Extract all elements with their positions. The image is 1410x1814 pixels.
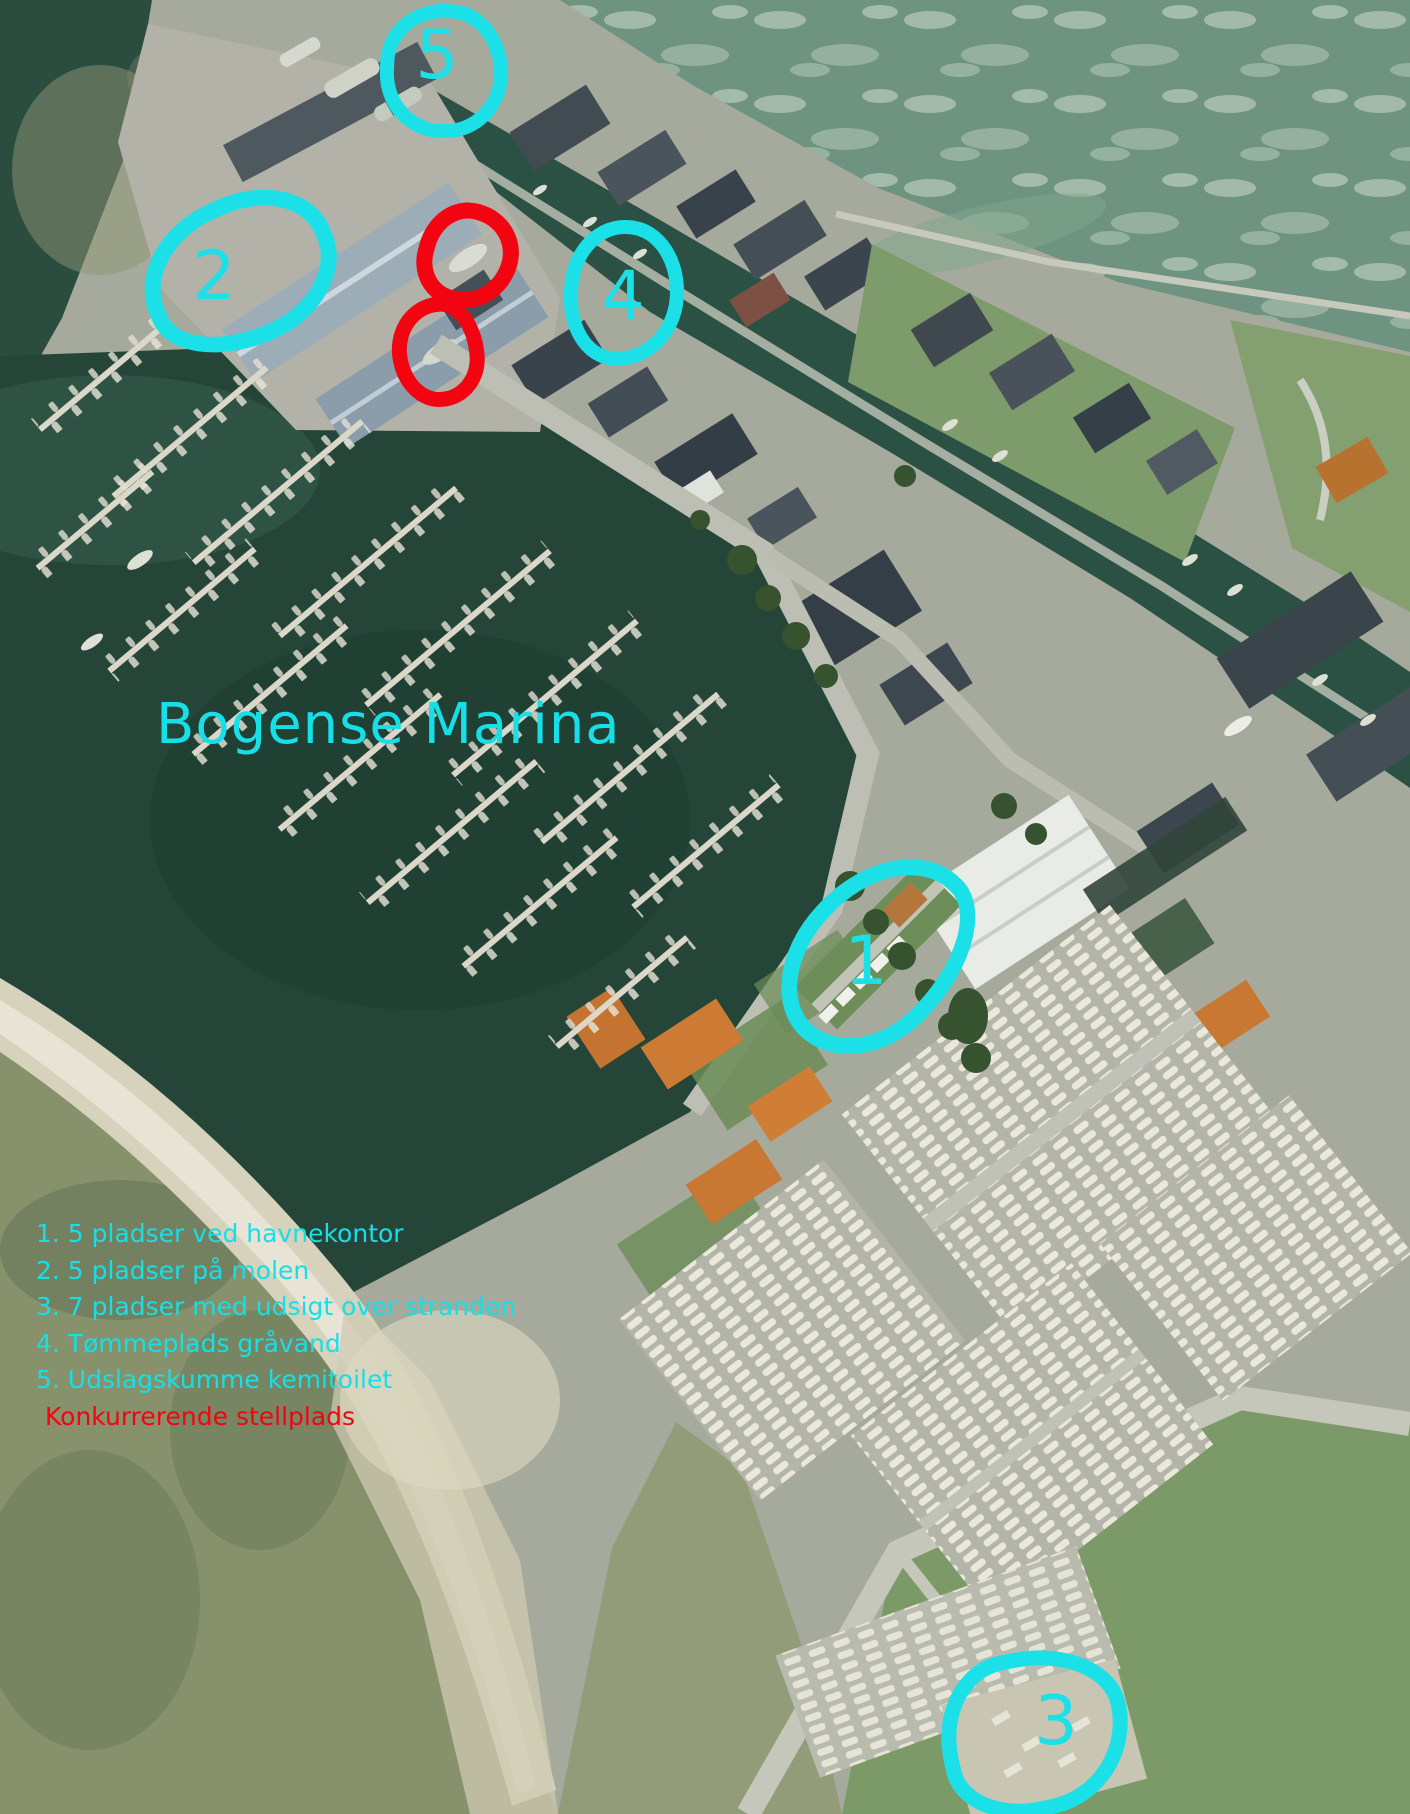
- competitor-circle-b: [387, 292, 490, 411]
- marker-5-label: 5: [415, 22, 458, 90]
- marker-3-label: 3: [1034, 1688, 1077, 1756]
- aerial-map: Bogense Marina 1. 5 pladser ved havnekon…: [0, 0, 1410, 1814]
- marker-4-label: 4: [601, 263, 644, 331]
- marker-1-label: 1: [844, 928, 887, 996]
- legend-note: Konkurrerende stellplads: [36, 1399, 516, 1436]
- map-title: Bogense Marina: [156, 692, 621, 757]
- marker-2-label: 2: [192, 243, 235, 311]
- legend-item-1: 1. 5 pladser ved havnekontor: [36, 1216, 516, 1253]
- legend-item-3: 3. 7 pladser med udsigt over stranden: [36, 1289, 516, 1326]
- legend-item-5: 5. Udslagskumme kemitoilet: [36, 1362, 516, 1399]
- legend: 1. 5 pladser ved havnekontor 2. 5 pladse…: [36, 1216, 516, 1436]
- marker-2-circle: [118, 163, 362, 381]
- legend-item-2: 2. 5 pladser på molen: [36, 1253, 516, 1290]
- annotation-overlay: Bogense Marina 1. 5 pladser ved havnekon…: [0, 0, 1410, 1814]
- legend-item-4: 4. Tømmeplads gråvand: [36, 1326, 516, 1363]
